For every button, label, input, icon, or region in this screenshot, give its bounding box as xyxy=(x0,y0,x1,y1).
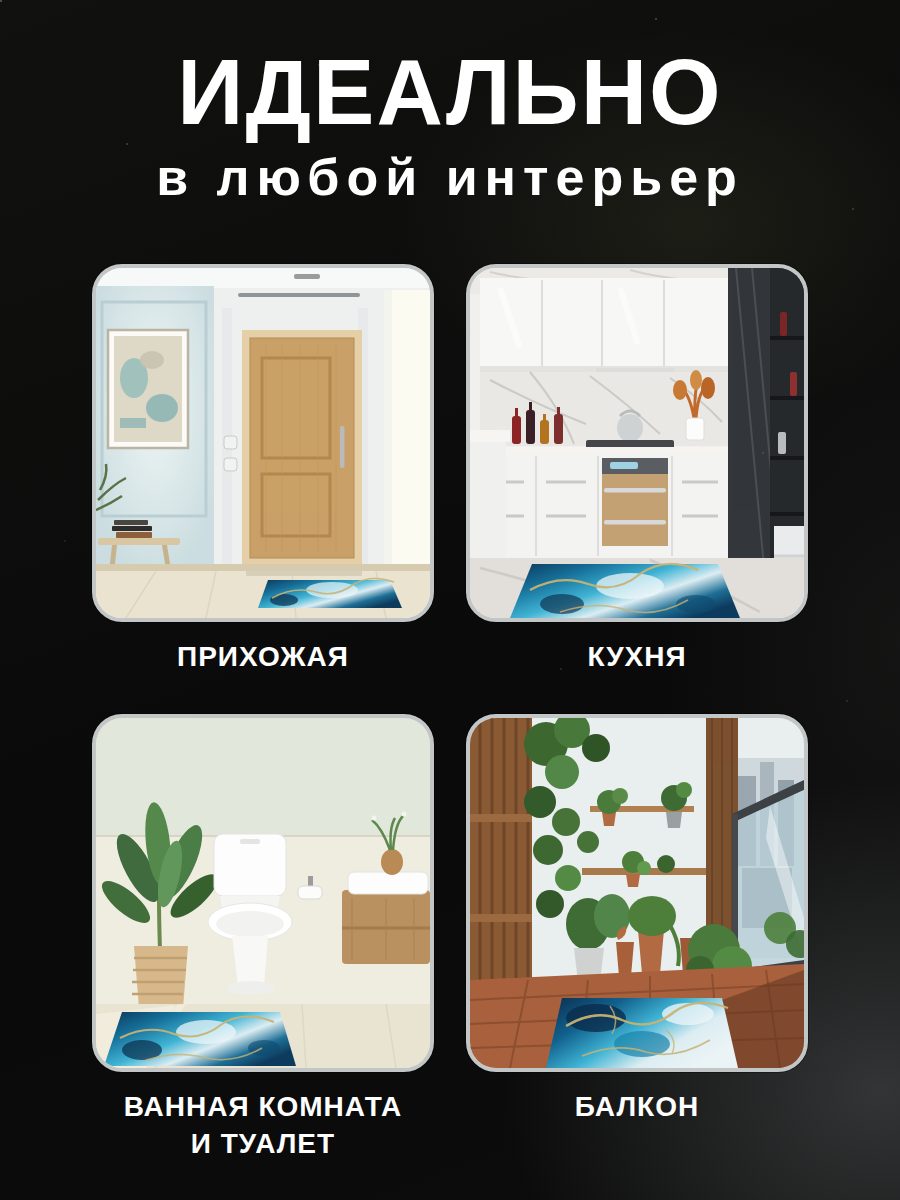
card-bathroom xyxy=(92,714,434,1072)
rug xyxy=(104,1012,296,1066)
wall-art xyxy=(108,330,188,448)
upper-cabinets xyxy=(480,278,728,372)
card-label-balcony: БАЛКОН xyxy=(466,1072,808,1164)
card-label-bathroom: ВАННАЯ КОМНАТА И ТУАЛЕТ xyxy=(92,1072,434,1200)
lower-cabinets xyxy=(470,430,728,562)
card-kitchen xyxy=(466,264,808,622)
ceiling-vent xyxy=(294,274,320,279)
window-light xyxy=(392,290,430,566)
rooms-grid: ПРИХОЖАЯ КУХНЯ xyxy=(92,264,808,1200)
bathroom-photo xyxy=(96,718,430,1068)
door xyxy=(242,330,362,564)
rug xyxy=(546,998,738,1068)
card-balcony xyxy=(466,714,808,1072)
wardrobe xyxy=(728,268,804,588)
wicker-pot xyxy=(132,946,188,1008)
balcony-photo xyxy=(470,718,804,1068)
rug xyxy=(510,564,740,618)
oven xyxy=(602,458,668,546)
promo-page: ИДЕАЛЬНО в любой интерьер xyxy=(0,0,900,1200)
rug xyxy=(258,578,402,608)
hallway-photo xyxy=(96,268,430,618)
card-label-hallway: ПРИХОЖАЯ xyxy=(92,622,434,714)
door-grille xyxy=(238,293,360,297)
kitchen-photo xyxy=(470,268,804,618)
kettle xyxy=(617,411,643,442)
card-label-kitchen: КУХНЯ xyxy=(466,622,808,714)
page-title: ИДЕАЛЬНО xyxy=(0,46,900,138)
door-handle xyxy=(340,426,345,468)
card-hallway xyxy=(92,264,434,622)
baseboard xyxy=(96,564,430,571)
header: ИДЕАЛЬНО в любой интерьер xyxy=(0,46,900,208)
star-specks xyxy=(0,0,2,2)
page-subtitle: в любой интерьер xyxy=(0,148,900,208)
